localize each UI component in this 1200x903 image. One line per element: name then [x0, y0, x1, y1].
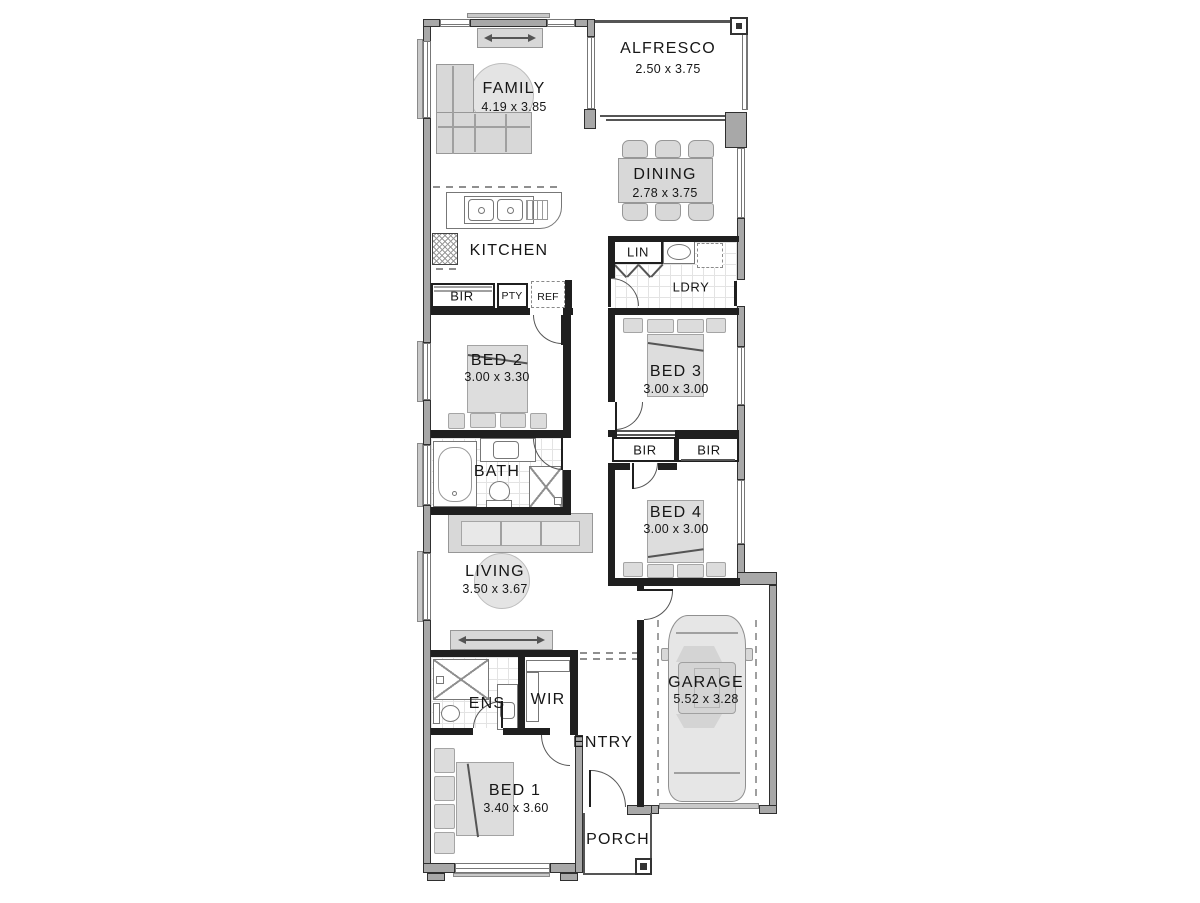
closet-label-ref: REF: [537, 291, 559, 303]
bed3-pillow: [677, 319, 704, 333]
toilet-bowl: [489, 481, 510, 501]
wall: [587, 19, 595, 37]
wall: [737, 218, 745, 280]
wall: [431, 650, 573, 657]
car-hood-line: [676, 632, 738, 634]
wall: [423, 19, 440, 27]
sofa-line: [474, 114, 476, 152]
door-arc: [541, 735, 570, 766]
wall: [759, 805, 777, 814]
room-label-porch: PORCH: [586, 831, 650, 849]
door-arc: [533, 315, 562, 344]
car-mirror: [661, 648, 669, 661]
room-label-living: LIVING: [465, 563, 525, 581]
room-dims-bed2: 3.00 x 3.30: [464, 370, 529, 384]
window-sill: [417, 39, 423, 119]
wall: [423, 118, 431, 343]
wall: [563, 315, 571, 430]
wall: [737, 572, 777, 585]
bed1-cushion: [434, 804, 455, 829]
sliding-door-track: [600, 115, 730, 117]
alfresco-rail: [742, 24, 748, 110]
bed1-cushion: [434, 748, 455, 773]
window-sill: [417, 551, 423, 622]
room-label-wir: WIR: [531, 691, 566, 709]
wall: [637, 586, 644, 591]
shower-head: [436, 676, 444, 684]
dining-chair: [622, 203, 648, 221]
sink-drainer: [526, 200, 548, 220]
window: [440, 19, 470, 27]
oven-dashed: [436, 268, 456, 270]
tv-unit-arrow-icon: [460, 639, 543, 641]
wall: [503, 728, 518, 735]
robe-slide-line: [434, 286, 492, 288]
room-label-bed2: BED 2: [471, 352, 523, 370]
room-label-bed3: BED 3: [650, 363, 702, 381]
wall: [769, 585, 777, 811]
bath-basin: [493, 441, 519, 459]
room-dims-garage: 5.52 x 3.28: [673, 692, 738, 706]
tv-unit-arrow-icon: [486, 37, 534, 39]
parking-dashed-line: [755, 620, 757, 802]
wall-pier: [427, 873, 445, 881]
alfresco-post-core: [736, 23, 742, 29]
window: [587, 37, 595, 109]
room-label-ens: ENS: [469, 695, 506, 713]
wall: [563, 308, 573, 315]
window: [423, 553, 431, 620]
door-leaf: [734, 281, 737, 306]
wall: [637, 620, 644, 807]
wall: [518, 657, 525, 728]
window-sill: [467, 13, 550, 18]
door-leaf: [561, 438, 563, 470]
closet-label-bir-bed4: BIR: [697, 443, 720, 458]
washer-dashed-box: [697, 243, 723, 268]
window-sill: [417, 341, 423, 402]
sofa-line: [452, 66, 454, 154]
toilet-bowl: [441, 705, 460, 722]
bed4-side-table: [706, 562, 726, 577]
sink-drain: [507, 207, 514, 214]
sofa-line: [500, 521, 502, 546]
wall: [431, 507, 571, 515]
front-door-arc: [591, 770, 626, 807]
dining-chair: [688, 140, 714, 158]
room-dims-dining: 2.78 x 3.75: [632, 186, 697, 200]
room-label-entry: ENTRY: [573, 734, 633, 752]
dining-chair: [655, 140, 681, 158]
closet-label-bir-bed3: BIR: [633, 443, 656, 458]
bed3-side-table: [623, 318, 643, 333]
laundry-tub-bowl: [667, 244, 691, 260]
room-dims-bed4: 3.00 x 3.00: [643, 522, 708, 536]
wall: [608, 578, 740, 586]
bed1-cushion: [434, 776, 455, 801]
room-label-bed4: BED 4: [650, 504, 702, 522]
door-arc: [632, 463, 658, 489]
front-door-leaf: [589, 770, 591, 807]
wall: [608, 308, 739, 315]
wall: [565, 280, 572, 308]
sofa-line: [438, 126, 530, 128]
window: [423, 445, 431, 505]
room-label-garage: GARAGE: [668, 674, 744, 692]
wall: [575, 735, 583, 873]
door-leaf: [615, 402, 617, 430]
bed4-pillow: [677, 564, 704, 578]
door-arc: [644, 591, 673, 620]
wall: [608, 470, 615, 578]
wall: [470, 19, 547, 27]
room-dims-living: 3.50 x 3.67: [462, 582, 527, 596]
car-rear-window: [676, 714, 722, 728]
door-arc: [615, 402, 643, 430]
room-dims-bed3: 3.00 x 3.00: [643, 382, 708, 396]
room-dims-bed1: 3.40 x 3.60: [483, 801, 548, 815]
wall: [725, 112, 747, 148]
wall: [608, 236, 739, 242]
wall: [608, 242, 615, 278]
wall: [518, 728, 550, 735]
wall: [674, 437, 679, 462]
wir-shelf: [526, 660, 570, 672]
dining-chair: [622, 140, 648, 158]
robe-slide-line: [617, 434, 675, 436]
wall-pier: [560, 873, 578, 881]
garage-door-panel: [659, 803, 759, 809]
window: [423, 343, 431, 400]
room-label-bed1: BED 1: [489, 782, 541, 800]
window: [737, 148, 745, 218]
shower-head: [554, 497, 562, 505]
car-windshield: [676, 646, 722, 662]
closet-label-lin: LIN: [627, 245, 649, 260]
toilet-cistern: [433, 703, 440, 724]
window: [737, 347, 745, 405]
floor-plan: FAMILY 4.19 x 3.85 ALFRESCO 2.50 x 3.75 …: [0, 0, 1200, 903]
room-label-family: FAMILY: [483, 80, 546, 98]
living-rug: [474, 553, 530, 609]
wall: [431, 430, 571, 438]
dining-chair: [655, 203, 681, 221]
wall: [423, 505, 431, 553]
room-dims-alfresco: 2.50 x 3.75: [635, 62, 700, 76]
room-label-dining: DINING: [633, 166, 696, 184]
window: [737, 480, 745, 544]
bed2-pillow: [500, 413, 526, 428]
sofa-seat: [436, 112, 532, 154]
kitchen-overhead-dashed: [433, 186, 559, 188]
wall: [423, 620, 431, 873]
wall: [675, 430, 739, 437]
room-label-alfresco: ALFRESCO: [620, 40, 716, 58]
window-sill: [417, 443, 423, 507]
wall: [570, 650, 578, 735]
bed4-side-table: [623, 562, 643, 577]
closet-label-bir: BIR: [450, 289, 473, 304]
sofa-line: [505, 114, 507, 152]
bulkhead-dashed: [580, 652, 637, 654]
sofa-line: [540, 521, 542, 546]
wall: [584, 109, 596, 129]
dining-chair: [688, 203, 714, 221]
room-label-bath: BATH: [474, 463, 520, 481]
wall: [608, 430, 617, 437]
closet-label-pty: PTY: [501, 290, 522, 302]
robe-slide-line: [617, 430, 675, 432]
window: [455, 863, 550, 873]
wall: [423, 863, 455, 873]
bed1-cushion: [434, 832, 455, 854]
sliding-door-track: [606, 119, 730, 121]
alfresco-edge: [595, 20, 747, 23]
robe-slide-line: [681, 459, 735, 461]
door-leaf: [644, 589, 673, 591]
door-leaf: [632, 463, 634, 489]
porch-post-core: [640, 863, 647, 870]
room-label-ldry: LDRY: [673, 280, 710, 295]
car-mirror: [745, 648, 753, 661]
wall: [431, 308, 530, 315]
bed2-pillow: [470, 413, 496, 428]
bed3-pillow: [647, 319, 674, 333]
wall: [658, 463, 677, 470]
bed4-pillow: [647, 564, 674, 578]
window: [423, 41, 431, 118]
window-sill: [453, 873, 550, 877]
wall: [423, 400, 431, 445]
wall: [431, 728, 473, 735]
car-trunk-line: [674, 772, 740, 774]
wall: [608, 315, 615, 402]
wall: [737, 544, 745, 575]
door-leaf: [561, 315, 563, 345]
window: [547, 19, 575, 27]
bathtub-drain: [452, 491, 457, 496]
bed2-side-table: [530, 413, 547, 429]
bed2-side-table: [448, 413, 465, 429]
room-dims-family: 4.19 x 3.85: [481, 100, 546, 114]
wall: [608, 463, 630, 470]
stove: [432, 233, 458, 265]
room-label-kitchen: KITCHEN: [470, 242, 549, 260]
bed3-side-table: [706, 318, 726, 333]
bulkhead-dashed: [580, 658, 637, 660]
sink-drain: [478, 207, 485, 214]
living-sofa-seat: [461, 521, 580, 546]
parking-dashed-line: [657, 620, 659, 802]
